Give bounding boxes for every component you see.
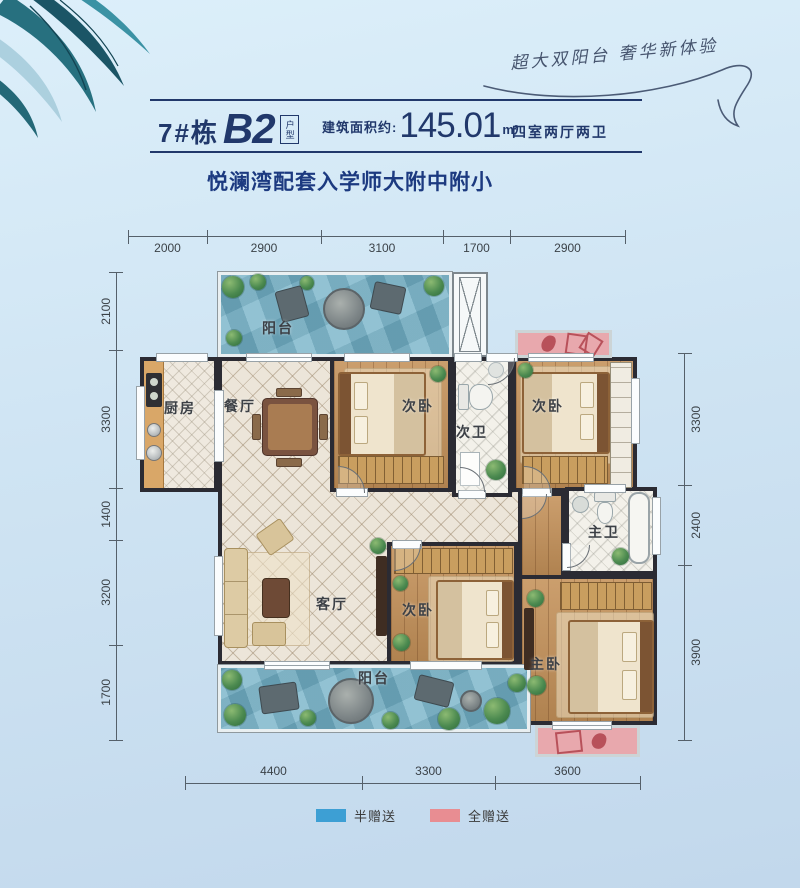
toilet-icon [597, 502, 613, 524]
dimension-segment: 3300 [95, 350, 117, 488]
room-label: 阳台 [262, 318, 294, 338]
dimension-segment: 2100 [95, 272, 117, 350]
dimension-segment: 2400 [684, 485, 706, 565]
side-table-icon [460, 690, 482, 712]
dimension-segment: 3600 [495, 762, 640, 784]
sink-icon [147, 423, 161, 437]
room-label: 主卫 [588, 522, 620, 542]
plant-icon [508, 674, 526, 692]
plant-icon [226, 330, 242, 346]
area-label: 建筑面积约: [322, 117, 397, 136]
wardrobe-icon [560, 582, 652, 610]
school-banner: 悦澜湾配套入学师大附中附小 [20, 166, 680, 196]
headboard [340, 374, 351, 454]
pillow-icon [354, 382, 368, 410]
dimension-segment: 2900 [207, 236, 321, 258]
tv-console-icon [376, 556, 387, 636]
room-label: 次卧 [532, 396, 564, 416]
window-strip [136, 386, 145, 460]
plant-icon [430, 366, 446, 382]
plant-icon [612, 548, 629, 565]
unit-code: B2 [223, 112, 275, 146]
plant-icon [438, 708, 460, 730]
room-label: 主卧 [530, 654, 562, 674]
armchair-icon [252, 622, 286, 646]
dimension-segment: 3300 [684, 353, 706, 485]
pillow-icon [580, 382, 594, 408]
blanket [570, 622, 598, 712]
chair-icon [319, 414, 328, 440]
window-strip [410, 661, 482, 670]
window-strip [156, 353, 208, 362]
room-label: 客厅 [316, 594, 348, 614]
bed-icon [436, 580, 514, 660]
plant-icon [250, 274, 266, 290]
dimension-segment: 3100 [321, 236, 443, 258]
pillow-icon [580, 414, 594, 440]
plant-icon [222, 670, 242, 690]
chair-icon [276, 388, 302, 397]
room-label: 次卫 [456, 422, 488, 442]
slider-door [528, 353, 594, 362]
room-label: 次卧 [402, 600, 434, 620]
toilet-tank [594, 492, 616, 502]
burner-icon [150, 392, 158, 400]
sink-icon [146, 445, 162, 461]
chair-icon [276, 458, 302, 467]
window-strip [344, 353, 410, 362]
toilet-icon [469, 384, 493, 410]
pillow-icon [622, 632, 637, 662]
palm-leaves-icon [0, 0, 190, 170]
headboard [640, 622, 652, 712]
window-strip [214, 556, 223, 636]
legend-swatch-half-gift [316, 809, 346, 822]
slider-door [552, 721, 612, 730]
plant-icon [222, 276, 244, 298]
bench-icon [258, 681, 300, 714]
bathtub-icon [628, 492, 650, 564]
room-label: 次卧 [402, 396, 434, 416]
bed-icon [568, 620, 654, 714]
plant-icon [518, 363, 533, 378]
plant-icon [393, 634, 410, 651]
unit-type-tag: 户型 [280, 115, 299, 144]
plant-icon [300, 276, 314, 290]
room-label: 厨房 [164, 398, 196, 418]
plant-icon [424, 276, 444, 296]
stone-table-icon [323, 288, 365, 330]
closet-icon [610, 362, 632, 488]
dimension-segment: 2000 [128, 236, 207, 258]
slider-door [246, 353, 312, 362]
slider-door [264, 661, 330, 670]
dimension-segment: 3300 [362, 762, 495, 784]
window-strip [584, 484, 626, 493]
legend: 半赠送 全赠送 [316, 806, 510, 825]
plant-icon [300, 710, 316, 726]
pillow-icon [486, 622, 499, 648]
dimension-left: 2100 3300 1400 3200 1700 [95, 272, 117, 740]
plant-icon [393, 576, 408, 591]
plant-icon [370, 538, 386, 554]
stair-shaft-icon [452, 272, 488, 357]
blanket [438, 582, 462, 658]
toilet-tank [458, 384, 469, 410]
dimension-segment: 1700 [95, 645, 117, 740]
room-label: 阳台 [358, 668, 390, 688]
legend-swatch-full-gift [430, 809, 460, 822]
window-strip [631, 378, 640, 444]
chair-sketch-icon [555, 730, 583, 755]
pillow-icon [622, 670, 637, 700]
window-strip [454, 353, 482, 362]
dimension-bottom: 4400 3300 3600 [185, 762, 640, 784]
legend-label-half-gift: 半赠送 [354, 806, 396, 825]
burner-icon [150, 378, 158, 386]
plant-icon [527, 676, 546, 695]
headboard [597, 374, 608, 452]
plant-icon [486, 460, 506, 480]
plant-icon [224, 704, 246, 726]
dimension-segment: 1700 [443, 236, 510, 258]
dimension-right: 3300 2400 3900 [684, 353, 706, 740]
dimension-segment: 4400 [185, 762, 362, 784]
basin-icon [572, 496, 589, 513]
dimension-segment: 2900 [510, 236, 625, 258]
headboard [502, 582, 512, 658]
plant-icon [382, 712, 399, 729]
sofa-icon [224, 548, 248, 648]
coffee-table-icon [262, 578, 290, 618]
floorplan-poster: 超大双阳台 奢华新体验 7#栋 B2 户型 建筑面积约: 145.01 m² 四… [0, 0, 800, 888]
dimension-top: 2000 2900 3100 1700 2900 [128, 236, 625, 258]
window-strip [652, 497, 661, 555]
plant-icon [527, 590, 544, 607]
pillow-icon [486, 590, 499, 616]
tagline-underline-icon [470, 28, 780, 143]
room-label: 餐厅 [224, 396, 256, 416]
pillow-icon [354, 416, 368, 444]
dimension-segment: 1400 [95, 488, 117, 540]
dimension-segment: 3200 [95, 540, 117, 645]
dining-table-top [268, 404, 312, 450]
legend-label-full-gift: 全赠送 [468, 806, 510, 825]
dimension-segment: 3900 [684, 565, 706, 740]
plant-icon [484, 698, 510, 724]
slider-door [214, 390, 224, 462]
chair-icon [252, 414, 261, 440]
